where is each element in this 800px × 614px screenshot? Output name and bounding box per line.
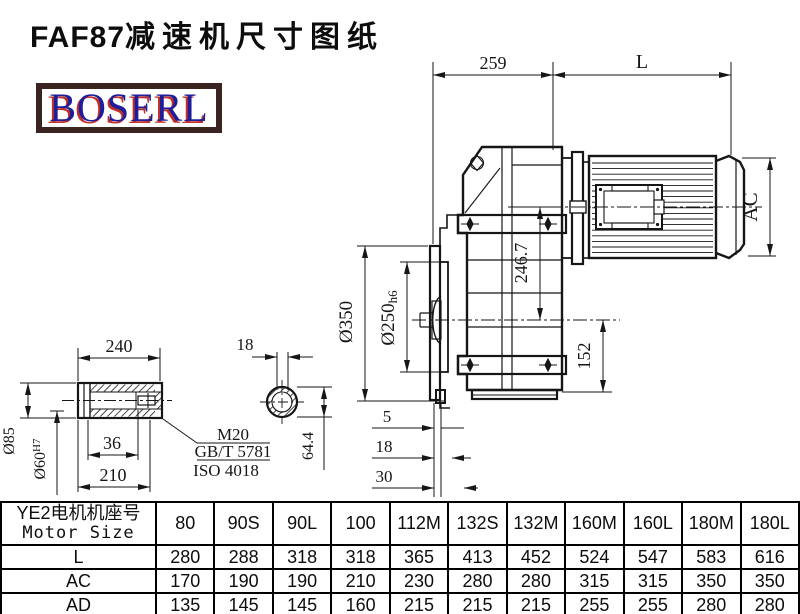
- frame-col-header: 160M: [565, 502, 623, 545]
- dim-row-label: AD: [1, 593, 156, 614]
- dim-value-cell: 583: [682, 545, 740, 569]
- hollow-shaft-view: [62, 383, 172, 418]
- dim-18-step: 18: [376, 437, 393, 456]
- dim-250h6: Ø250h6: [378, 290, 400, 346]
- frame-col-header: 90S: [214, 502, 272, 545]
- dim-value-cell: 135: [156, 593, 214, 614]
- dimension-lines: [20, 62, 776, 497]
- dim-value-cell: 350: [741, 569, 799, 593]
- dim-value-cell: 280: [156, 545, 214, 569]
- dim-30: 30: [376, 467, 393, 486]
- dim-value-cell: 170: [156, 569, 214, 593]
- dim-350: Ø350: [336, 301, 357, 343]
- frame-col-header: 80: [156, 502, 214, 545]
- table-row-L: L 280 288 318 318 365 413 452 524 547 58…: [1, 545, 799, 569]
- frame-col-header: 90L: [273, 502, 331, 545]
- dim-value-cell: 413: [448, 545, 506, 569]
- motor-size-table: YE2电机机座号 Motor Size 80 90S 90L 100 112M …: [0, 501, 800, 614]
- dim-value-cell: 255: [565, 593, 623, 614]
- dim-value-cell: 288: [214, 545, 272, 569]
- frame-col-header: 132S: [448, 502, 506, 545]
- frame-col-header: 132M: [507, 502, 565, 545]
- label-iso-4018: ISO 4018: [193, 461, 259, 480]
- motor-size-header-en: Motor Size: [2, 524, 155, 544]
- dim-row-label: AC: [1, 569, 156, 593]
- dim-value-cell: 547: [624, 545, 682, 569]
- frame-col-header: 180M: [682, 502, 740, 545]
- dim-value-cell: 315: [624, 569, 682, 593]
- dim-240: 240: [106, 336, 133, 356]
- dim-value-cell: 255: [624, 593, 682, 614]
- dim-value-cell: 616: [741, 545, 799, 569]
- dim-value-cell: 215: [448, 593, 506, 614]
- dim-value-cell: 280: [448, 569, 506, 593]
- dimension-sheet: FAF87减速机尺寸图纸 BOSERL: [0, 0, 800, 614]
- dim-value-cell: 190: [214, 569, 272, 593]
- dim-259: 259: [480, 53, 507, 73]
- table-row-AD: AD 135 145 145 160 215 215 215 255 255 2…: [1, 593, 799, 614]
- dim-value-cell: 315: [565, 569, 623, 593]
- dim-246-7: 246.7: [511, 243, 531, 284]
- dim-value-cell: 145: [214, 593, 272, 614]
- dimension-labels: 259 L AC 246.7 152 Ø350 Ø250h6 5 18 30 2…: [1, 51, 762, 486]
- dim-value-cell: 210: [331, 569, 389, 593]
- dim-value-cell: 230: [390, 569, 448, 593]
- frame-col-header: 112M: [390, 502, 448, 545]
- dim-value-cell: 280: [741, 593, 799, 614]
- dim-L: L: [636, 51, 648, 73]
- dim-value-cell: 350: [682, 569, 740, 593]
- frame-col-header: 160L: [624, 502, 682, 545]
- dim-value-cell: 280: [682, 593, 740, 614]
- dim-64-4: 64.4: [300, 432, 317, 460]
- dim-value-cell: 365: [390, 545, 448, 569]
- dim-85: Ø85: [1, 427, 18, 455]
- dim-value-cell: 452: [507, 545, 565, 569]
- motor-size-header-cell: YE2电机机座号 Motor Size: [1, 502, 156, 545]
- table-row-AC: AC 170 190 190 210 230 280 280 315 315 3…: [1, 569, 799, 593]
- dim-value-cell: 145: [273, 593, 331, 614]
- dim-5: 5: [383, 407, 392, 426]
- dim-210: 210: [100, 465, 127, 485]
- dim-value-cell: 318: [331, 545, 389, 569]
- dim-row-label: L: [1, 545, 156, 569]
- dim-value-cell: 524: [565, 545, 623, 569]
- dim-60H7: Ø60H7: [31, 438, 49, 480]
- dim-value-cell: 215: [390, 593, 448, 614]
- table-header-row: YE2电机机座号 Motor Size 80 90S 90L 100 112M …: [1, 502, 799, 545]
- frame-col-header: 100: [331, 502, 389, 545]
- dim-value-cell: 215: [507, 593, 565, 614]
- dim-36: 36: [103, 433, 121, 453]
- frame-col-header: 180L: [741, 502, 799, 545]
- dim-152: 152: [574, 343, 594, 370]
- motor-size-header-cn: YE2电机机座号: [2, 503, 155, 524]
- label-gbt-5781: GB/T 5781: [195, 442, 272, 461]
- dim-value-cell: 160: [331, 593, 389, 614]
- dim-18-slot: 18: [237, 335, 254, 354]
- dim-AC: AC: [738, 192, 762, 221]
- dim-value-cell: 318: [273, 545, 331, 569]
- dim-value-cell: 190: [273, 569, 331, 593]
- dim-value-cell: 280: [507, 569, 565, 593]
